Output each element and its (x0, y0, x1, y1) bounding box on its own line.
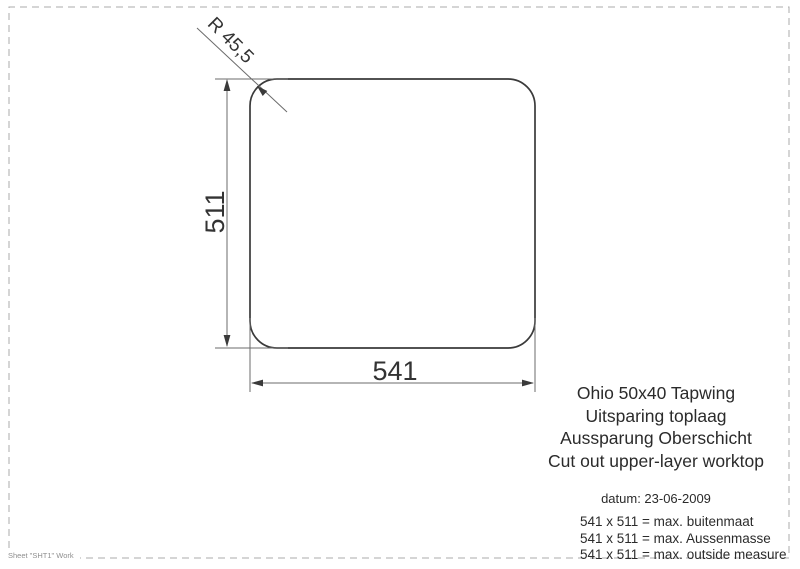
arrow-left-icon (251, 380, 263, 387)
description-german: Aussparung Oberschicht (523, 427, 789, 450)
sheet-tab-label: Sheet "SHT1" Work (7, 551, 77, 561)
measure-note-dutch: 541 x 511 = max. buitenmaat (580, 514, 787, 531)
date-label: datum: 23-06-2009 (523, 492, 789, 506)
product-name: Ohio 50x40 Tapwing (523, 382, 789, 405)
description-english: Cut out upper-layer worktop (523, 450, 789, 473)
arrow-down-icon (224, 335, 231, 347)
arrow-up-icon (224, 79, 231, 91)
technical-drawing (0, 0, 800, 569)
product-title-block: Ohio 50x40 Tapwing Uitsparing toplaag Au… (523, 382, 789, 472)
radius-arrowhead-icon (257, 86, 267, 96)
measure-note-english: 541 x 511 = max. outside measure (580, 547, 787, 564)
sheet-border (9, 7, 789, 558)
cutout-outline (250, 79, 535, 348)
measure-note-german: 541 x 511 = max. Aussenmasse (580, 531, 787, 548)
drawing-sheet: R 45,5 511 541 Ohio 50x40 Tapwing Uitspa… (0, 0, 800, 569)
height-dimension-label: 511 (201, 162, 229, 262)
description-dutch: Uitsparing toplaag (523, 405, 789, 428)
measure-notes: 541 x 511 = max. buitenmaat 541 x 511 = … (580, 514, 787, 564)
width-dimension-label: 541 (345, 357, 445, 385)
